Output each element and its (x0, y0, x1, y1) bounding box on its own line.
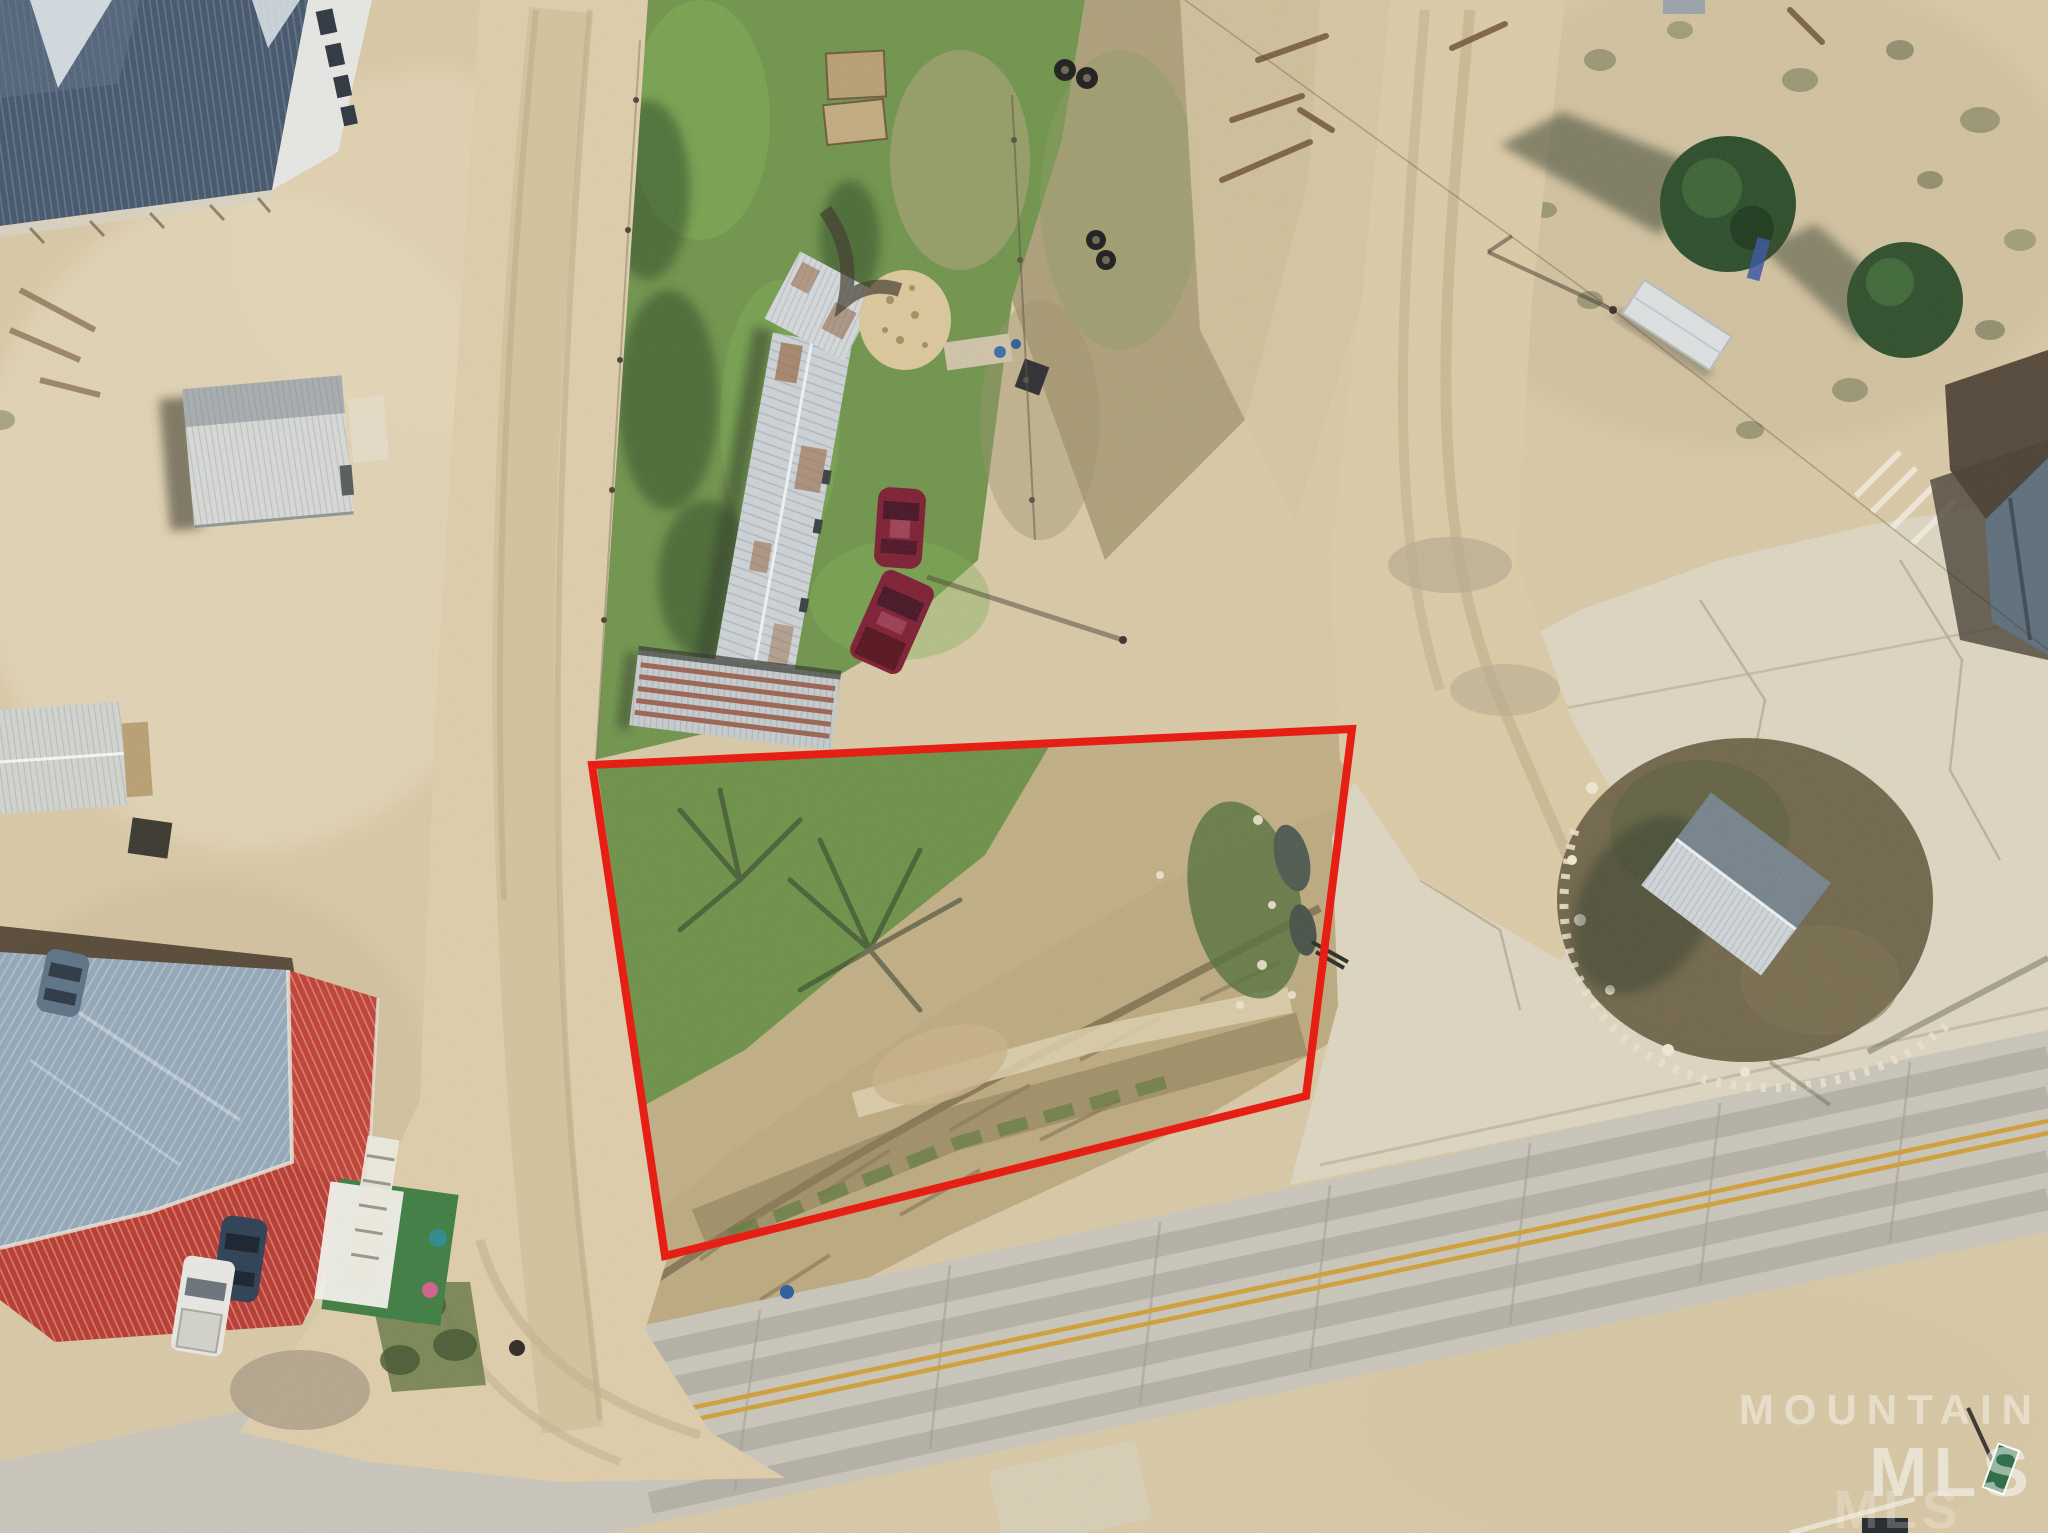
aerial-photo: MOUNTAIN MLS MLS (0, 0, 2048, 1533)
watermark-echo: MLS (1834, 1480, 1963, 1533)
watermark-line1: MOUNTAIN (1739, 1386, 2042, 1433)
photo-grain (0, 0, 2048, 1533)
